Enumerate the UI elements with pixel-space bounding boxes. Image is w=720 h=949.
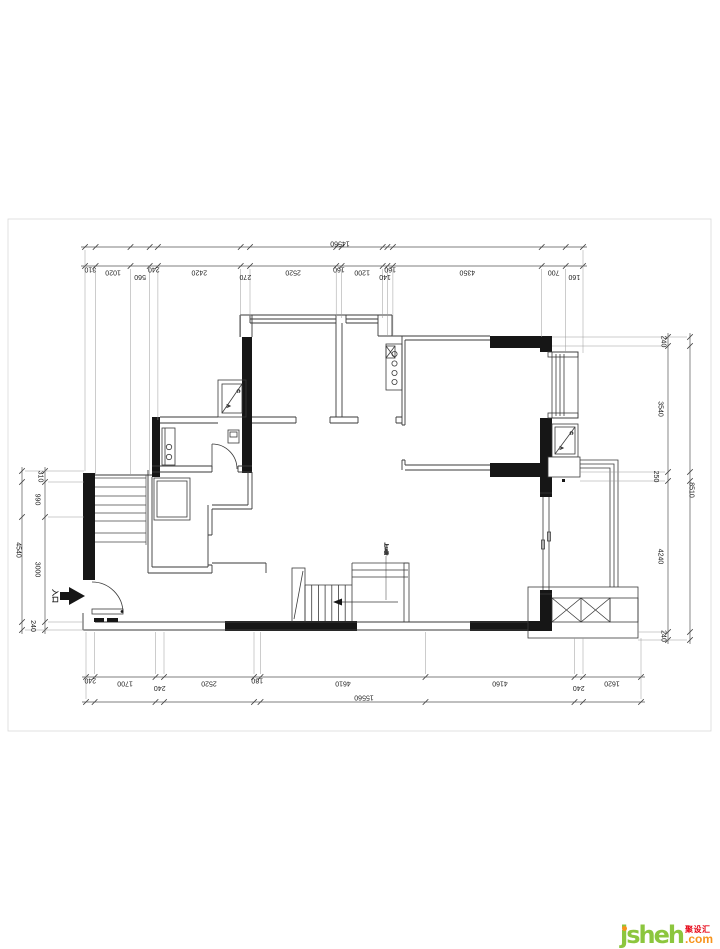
dim-label-top-3: 240 xyxy=(148,266,160,273)
ac-unit-nw: A C xyxy=(218,380,246,417)
dim-label-right-4: 240 xyxy=(660,630,667,642)
dim-label-right-2: 250 xyxy=(652,471,659,483)
kitchen-fixtures xyxy=(386,344,402,390)
basin xyxy=(166,454,171,459)
dim-label-right-1: 3540 xyxy=(657,401,664,417)
logo-brand-text: jsheh xyxy=(620,926,683,945)
entry-arrow-icon xyxy=(69,587,85,605)
ac-unit-e: A C xyxy=(552,424,578,457)
dim-label-left-3: 240 xyxy=(29,620,36,632)
wall-black xyxy=(490,463,548,477)
doors xyxy=(92,444,552,622)
entrance-label: 入口 xyxy=(51,588,59,603)
ac-letter: A xyxy=(226,404,231,407)
sliding-door-panels xyxy=(543,497,549,590)
stair-direction-arrow xyxy=(333,599,342,606)
logo-j-dot xyxy=(622,926,627,931)
dim-label-top-2: 560 xyxy=(134,273,146,280)
stair-note: 上18阶 xyxy=(384,543,390,555)
floor-step-edge xyxy=(212,563,266,573)
dim-label-top-13: 160 xyxy=(568,273,580,280)
floor-plan-sheet: A C A C xyxy=(0,0,720,949)
wall-black xyxy=(540,336,552,352)
dim-label-right-3: 4240 xyxy=(657,549,664,565)
dimension-chains: 3101020560240242027025201601200140160435… xyxy=(15,240,695,705)
dim-label-top-10: 160 xyxy=(384,266,396,273)
walls-black xyxy=(83,336,552,631)
dim-label-bottom-6: 4160 xyxy=(492,680,508,687)
dim-chain-left: 31099030002404540 xyxy=(15,467,85,634)
bay-window-cap xyxy=(548,413,578,418)
stair-wall xyxy=(404,563,409,622)
dim-label-top-1: 1020 xyxy=(105,269,121,276)
dim-total-right: 8510 xyxy=(688,482,695,498)
dim-label-bottom-5: 4610 xyxy=(335,680,351,687)
closet-outline xyxy=(154,478,190,520)
dim-total-top: 14560 xyxy=(330,240,350,247)
dim-label-top-12: 700 xyxy=(548,269,560,276)
kitchen-counter xyxy=(386,344,402,390)
dim-label-left-2: 3000 xyxy=(34,562,41,578)
platform-step xyxy=(610,598,638,622)
jsheh-logo: jsheh 聚设汇 .com xyxy=(620,926,713,945)
logo-tld-text: .com xyxy=(685,934,713,945)
dim-chain-right: 240354025042402408510 xyxy=(552,333,695,644)
duct-box xyxy=(548,457,580,477)
bay-window-master xyxy=(548,352,578,418)
wall-black xyxy=(540,590,552,622)
dim-total-left: 4540 xyxy=(15,542,22,558)
stove-burner xyxy=(392,361,397,366)
ac-diagonal xyxy=(222,384,242,413)
balcony-railing xyxy=(580,460,618,587)
closet xyxy=(154,478,190,520)
toilet-tank xyxy=(230,432,237,437)
dim-label-bottom-0: 240 xyxy=(84,677,96,684)
dim-label-top-5: 270 xyxy=(239,273,251,280)
dim-label-bottom-7: 240 xyxy=(573,684,585,691)
door-swing-arc xyxy=(212,444,237,469)
steps-lines xyxy=(95,475,146,545)
drain-point xyxy=(562,479,565,482)
ac-letter: C xyxy=(569,431,574,435)
platform-x-bracing xyxy=(552,598,610,622)
dim-label-right-0: 240 xyxy=(660,336,667,348)
stair-treads xyxy=(305,563,352,621)
threshold-mark xyxy=(94,618,104,622)
windows xyxy=(548,352,578,418)
door-leaf xyxy=(92,609,123,614)
wall-black xyxy=(540,477,552,497)
door-hinge xyxy=(121,610,124,613)
dim-label-bottom-1: 1700 xyxy=(117,680,133,687)
bathroom-fixtures xyxy=(162,428,239,465)
stove-burner xyxy=(392,370,397,375)
door-swing-arc xyxy=(92,582,123,613)
threshold-mark xyxy=(107,618,118,622)
wall-black xyxy=(152,417,160,477)
bathroom-walls xyxy=(152,417,252,472)
stove-burner xyxy=(392,351,397,356)
entry-door xyxy=(92,582,123,622)
balcony-sliding-door xyxy=(540,493,552,594)
wall-black xyxy=(540,418,552,463)
dim-label-bottom-2: 240 xyxy=(154,684,166,691)
stair-break-line xyxy=(294,571,303,619)
ac-units: A C A C xyxy=(218,380,578,457)
dim-label-left-1: 990 xyxy=(34,494,41,506)
master-room-walls xyxy=(402,336,490,470)
wall-black xyxy=(242,337,252,473)
sw-bedroom-walls xyxy=(148,470,252,573)
bay-window-glass xyxy=(556,354,564,416)
logo-side-block: 聚设汇 .com xyxy=(685,926,713,945)
stair-upper-flight xyxy=(352,563,408,577)
dim-label-top-11: 4350 xyxy=(459,269,475,276)
dim-label-top-8: 1200 xyxy=(354,269,370,276)
entry-arrow-tail xyxy=(60,592,69,600)
ac-letter: A xyxy=(559,446,564,449)
top-rooms-walls xyxy=(240,315,405,423)
wall-black xyxy=(528,621,552,631)
staircase: 上18阶 xyxy=(292,543,409,622)
closet-inner xyxy=(157,481,187,517)
balcony xyxy=(548,457,618,587)
ac-letter: C xyxy=(236,389,241,393)
dim-label-bottom-8: 1620 xyxy=(604,680,620,687)
dim-label-top-9: 140 xyxy=(379,273,391,280)
wall-black xyxy=(225,621,357,631)
dim-label-top-6: 2520 xyxy=(285,269,301,276)
entry-steps xyxy=(95,475,146,545)
dim-label-bottom-3: 2520 xyxy=(201,680,217,687)
dim-label-top-7: 160 xyxy=(333,266,345,273)
dim-total-bottom: 15560 xyxy=(354,694,374,701)
floor-plan-drawing: A C A C xyxy=(0,0,720,949)
bay-window-cap xyxy=(548,352,578,357)
dim-chain-bottom: 2401700240252018046104160240162015560 xyxy=(82,632,645,705)
dim-label-top-4: 2420 xyxy=(191,269,207,276)
bottom-outer-wall xyxy=(83,475,528,630)
dim-label-bottom-4: 180 xyxy=(251,677,263,684)
bathroom-door xyxy=(212,444,237,469)
basin xyxy=(166,444,171,449)
stove-burner xyxy=(392,379,397,384)
wall-black xyxy=(83,473,95,580)
dim-label-left-0: 310 xyxy=(37,471,44,483)
dim-label-top-0: 310 xyxy=(84,266,96,273)
entrance-marker: 入口 xyxy=(51,587,85,605)
